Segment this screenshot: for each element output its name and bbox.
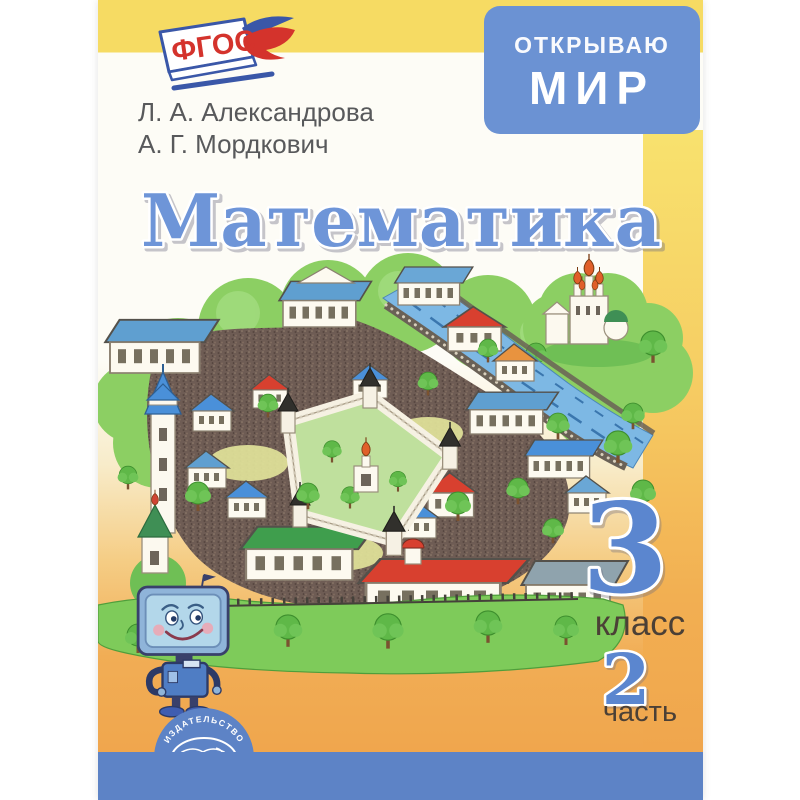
series-line2: МИР <box>484 61 700 115</box>
fgos-logo-icon: ФГОС <box>144 12 304 96</box>
author-line-2: А. Г. Мордкович <box>138 128 374 160</box>
book-cover: ФГОС ОТКРЫВАЮ МИР Л. А. Александрова А. … <box>98 0 703 800</box>
book-title: Математика <box>141 178 661 263</box>
authors-block: Л. А. Александрова А. Г. Мордкович <box>138 96 374 160</box>
series-line1: ОТКРЫВАЮ <box>484 32 700 59</box>
part-label: часть <box>560 696 720 729</box>
bottom-band <box>98 752 703 800</box>
grade-label: класс <box>560 604 720 644</box>
book-cover-photo: ФГОС ОТКРЫВАЮ МИР Л. А. Александрова А. … <box>0 0 800 800</box>
grade-number: 3 <box>582 478 668 618</box>
series-badge: ОТКРЫВАЮ МИР <box>484 6 700 134</box>
hill-church <box>523 254 683 373</box>
grade-number-art: 3 <box>550 478 700 618</box>
author-line-1: Л. А. Александрова <box>138 96 374 128</box>
robot-mascot-icon <box>110 572 260 722</box>
